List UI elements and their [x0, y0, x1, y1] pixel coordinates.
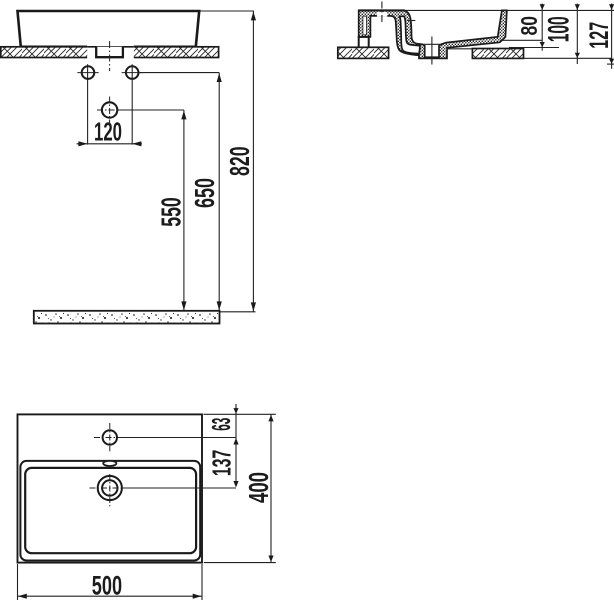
svg-text:127: 127 [584, 22, 614, 49]
svg-text:400: 400 [243, 472, 274, 503]
svg-text:500: 500 [92, 571, 122, 600]
svg-text:63: 63 [208, 418, 236, 431]
svg-text:550: 550 [156, 197, 187, 227]
svg-text:100: 100 [542, 16, 575, 42]
svg-text:80: 80 [516, 16, 542, 36]
svg-text:820: 820 [224, 146, 255, 176]
svg-text:120: 120 [94, 119, 122, 147]
svg-text:137: 137 [209, 450, 237, 477]
svg-text:650: 650 [189, 178, 220, 208]
